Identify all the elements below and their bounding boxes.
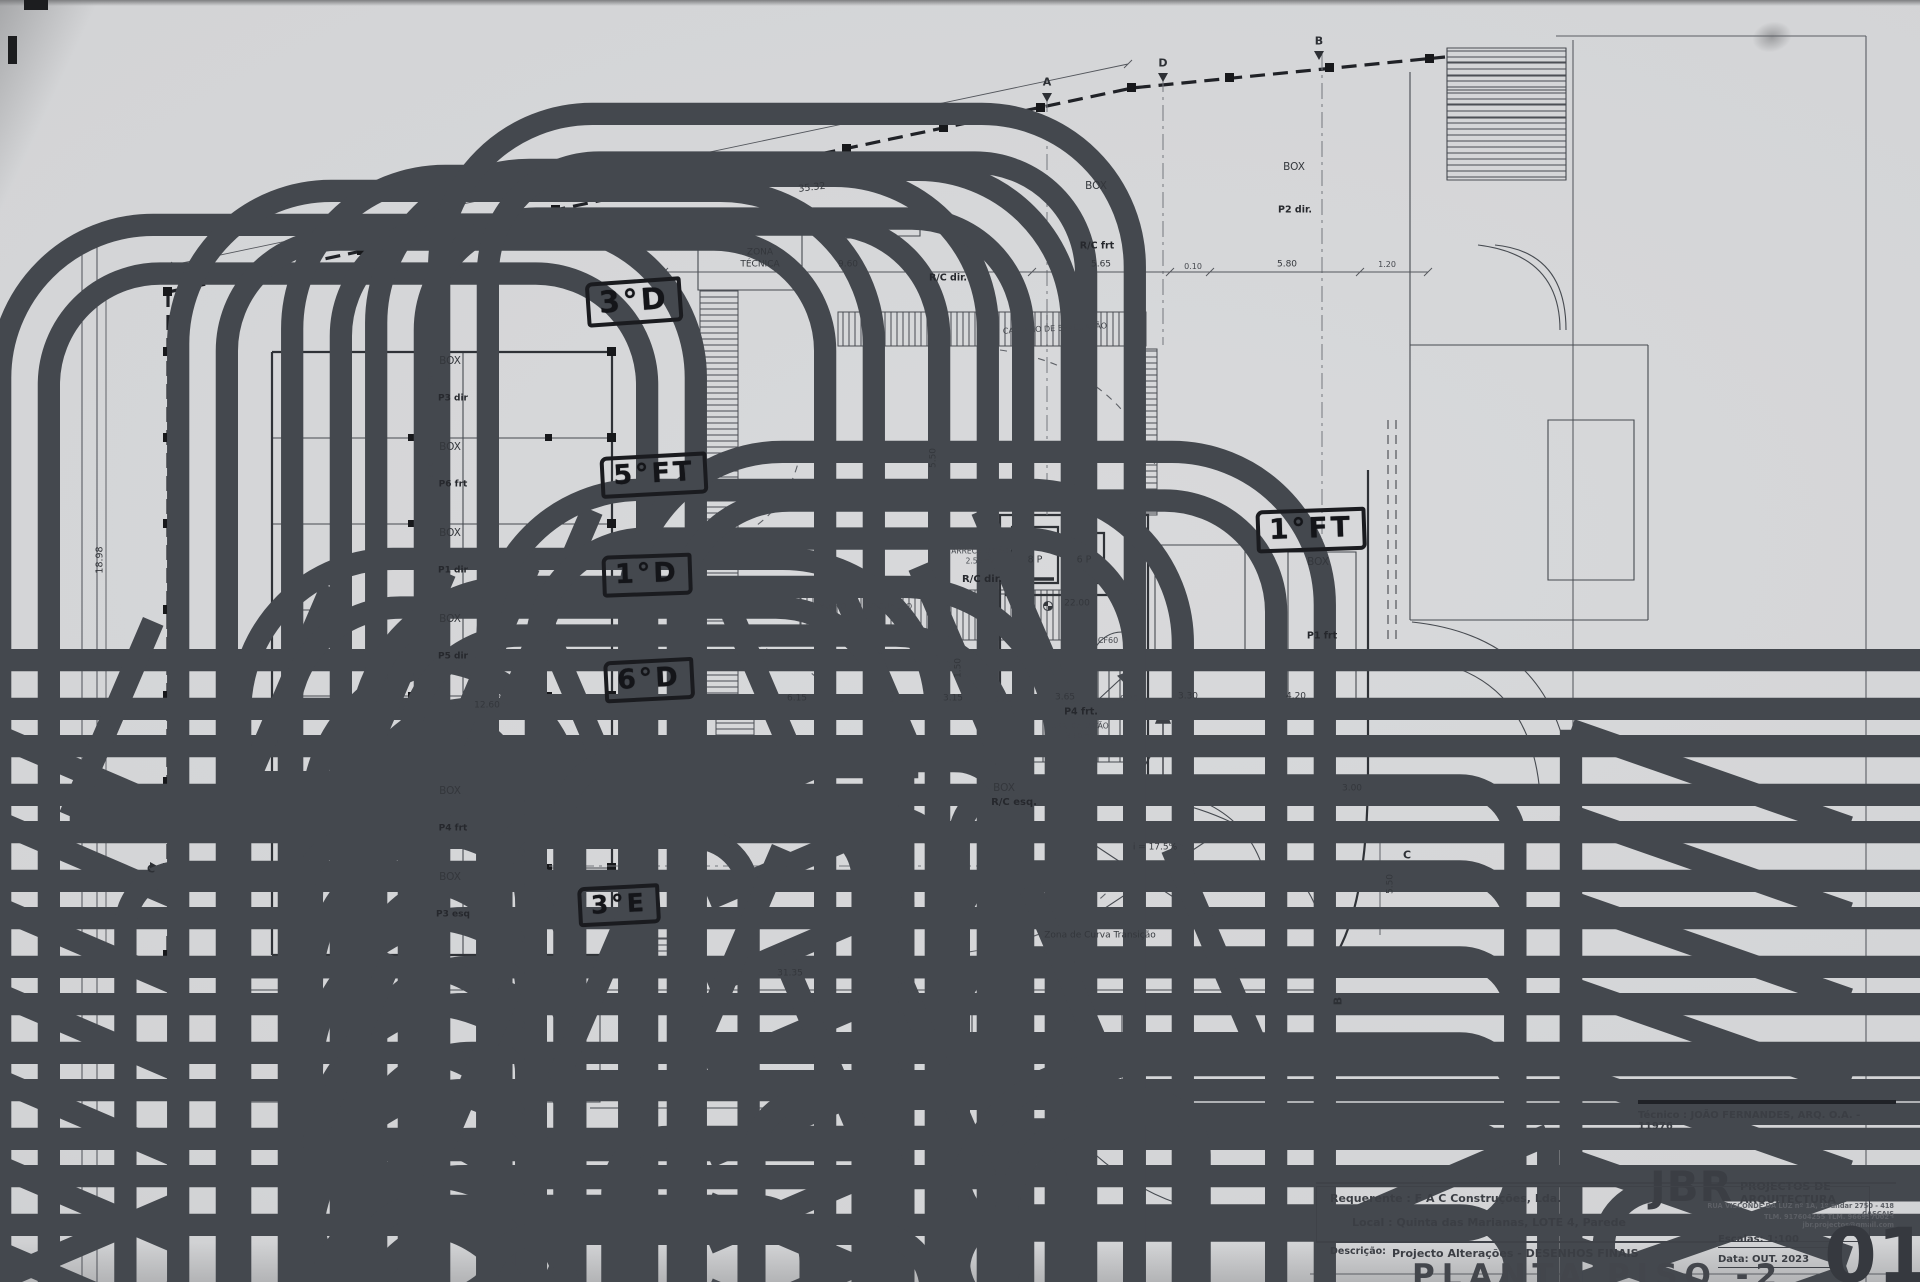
plan-label: 2.50m2 bbox=[966, 557, 995, 565]
local-value: Quinta das Marianas, LOTE 4, Parede bbox=[1396, 1216, 1626, 1229]
plan-label: P1 frt bbox=[1307, 631, 1337, 641]
plan-label: 3.65 bbox=[427, 371, 435, 388]
plan-label: P6 frt bbox=[439, 481, 468, 490]
plan-label: BOX bbox=[1085, 181, 1107, 192]
handwritten-annotation: 1°D bbox=[601, 553, 692, 598]
plan-label: 18.98 bbox=[95, 546, 105, 573]
plan-label: BOX bbox=[439, 786, 461, 797]
plan-label: R/C dir. bbox=[962, 575, 1002, 585]
section-marker-b-bottom: B bbox=[1333, 997, 1344, 1005]
plan-label: CAMINHO DE EVACUAÇÃO bbox=[808, 603, 912, 611]
plan-label: 4.20 bbox=[1286, 693, 1306, 702]
plan-label: Zona de Curva Transição bbox=[1044, 932, 1156, 941]
plan-label: P2 dir. bbox=[1278, 205, 1312, 215]
plan-label: 22.00 bbox=[1064, 600, 1090, 609]
plan-label: R/C frt bbox=[1080, 241, 1114, 251]
requerente-label: Requerente : bbox=[1330, 1192, 1411, 1205]
scanned-floor-plan-sheet: ZONATÉCNICABOXBOXBOXBOXBOXBOXP3 dirP6 fr… bbox=[0, 0, 1920, 1282]
plan-label: BOX bbox=[439, 528, 461, 539]
requerente-value: F A C Construções, Lda. bbox=[1415, 1192, 1562, 1205]
plan-label: 3.30 bbox=[1178, 693, 1198, 702]
plan-label: 3.00 bbox=[1342, 785, 1362, 794]
plan-label: 31.35 bbox=[777, 970, 803, 979]
plan-label: 0.10 bbox=[889, 696, 907, 704]
handwritten-annotation: 3°E bbox=[577, 883, 661, 927]
tecnico-line: Técnico : JOÃO FERNANDES, ARQ. O.A. - 11… bbox=[1638, 1110, 1896, 1132]
plan-label: ZONA bbox=[747, 249, 773, 258]
plan-label: BOX bbox=[1307, 557, 1329, 568]
plan-label: 1.20 bbox=[1378, 261, 1396, 269]
description-divider bbox=[1316, 1242, 1716, 1243]
plan-label: 5.50 bbox=[930, 448, 939, 468]
plan-label: 1.50 bbox=[955, 658, 964, 678]
plan-label: P3 esq bbox=[436, 911, 470, 920]
date-field: Data: OUT. 2023 bbox=[1718, 1254, 1836, 1268]
handwritten-annotation: 6°D bbox=[603, 657, 695, 703]
requerente-line: Requerente : F A C Construções, Lda. bbox=[1330, 1192, 1561, 1205]
plan-label: 0.20 bbox=[1120, 695, 1138, 703]
plan-label: 0.10 bbox=[1184, 263, 1202, 271]
title-block-rule bbox=[1638, 1100, 1896, 1104]
section-marker-c-right: C bbox=[1403, 850, 1411, 861]
handwritten-annotation: 5°FT bbox=[599, 451, 708, 498]
stall-dashed-lines bbox=[1388, 420, 1396, 645]
plan-label: BOX bbox=[439, 356, 461, 367]
plan-label: TÉCNICA bbox=[740, 261, 779, 270]
plan-label: 6.15 bbox=[787, 695, 807, 704]
plan-label: i = 17.5% bbox=[1133, 844, 1177, 853]
section-marker-d: D bbox=[1158, 58, 1167, 69]
plan-label: 5.65 bbox=[1091, 261, 1111, 270]
plan-label: P5 dir bbox=[438, 653, 468, 662]
plan-label: 6 P bbox=[1077, 555, 1092, 565]
plan-label: ARRECADAÇÃO bbox=[951, 547, 1008, 555]
plan-label: P3 dir bbox=[438, 395, 468, 404]
floor-plan-drawing bbox=[0, 0, 1920, 1282]
plan-label: 5.50 bbox=[1387, 874, 1396, 894]
local-label: Local : bbox=[1352, 1216, 1393, 1229]
handwritten-annotation: 1°FT bbox=[1255, 507, 1366, 554]
plan-label: CF60 bbox=[1098, 637, 1118, 645]
plan-label: 6.10 bbox=[427, 462, 435, 479]
plan-label: R/C dir. bbox=[929, 273, 967, 283]
descricao-label: Descrição: bbox=[1330, 1246, 1386, 1257]
scale-field: Escalas: 1:100 bbox=[1718, 1234, 1836, 1248]
plan-label: 3.65 bbox=[1055, 694, 1075, 703]
section-marker-b: B bbox=[1315, 36, 1323, 47]
sheet-number: 01 bbox=[1824, 1218, 1920, 1282]
plan-label: 12.60 bbox=[474, 702, 500, 711]
plan-label: 3.15 bbox=[943, 695, 963, 704]
plan-label: P1 dir bbox=[438, 567, 468, 576]
plan-label: 9.60 bbox=[838, 261, 858, 270]
plan-label: BOX bbox=[1283, 162, 1305, 173]
plan-label: ARRECADAÇÃO bbox=[1051, 722, 1108, 730]
plan-label: 8 P bbox=[1028, 555, 1043, 565]
local-line: Local : Quinta das Marianas, LOTE 4, Par… bbox=[1352, 1216, 1626, 1229]
handwritten-annotation: 3°D bbox=[585, 276, 684, 328]
plan-label: BOX bbox=[439, 872, 461, 883]
plan-label: 3.50m2 bbox=[1066, 732, 1095, 740]
plan-label: BOX bbox=[993, 783, 1015, 794]
plan-label: P4 frt bbox=[439, 825, 468, 834]
section-marker-c-left: C bbox=[147, 864, 155, 875]
section-marker-a: A bbox=[1043, 77, 1052, 88]
plan-label: 0.20 bbox=[994, 696, 1012, 704]
plan-label: BOX bbox=[439, 614, 461, 625]
plan-label: 5.80 bbox=[1277, 261, 1297, 270]
plan-label: BOX bbox=[439, 442, 461, 453]
plan-label: R/C esq. bbox=[991, 798, 1037, 808]
plan-label: P4 frt. bbox=[1064, 707, 1098, 717]
